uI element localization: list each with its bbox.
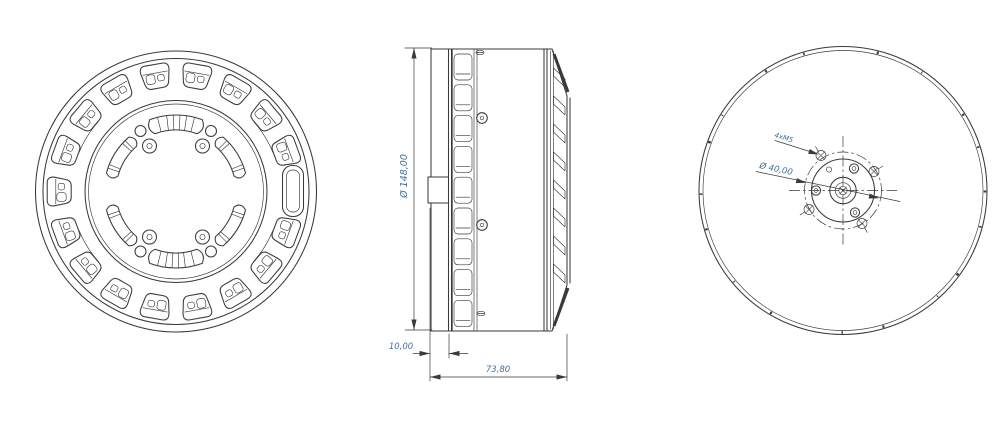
drawing-canvas: Ø 148,00 10,00 73,80 bbox=[0, 0, 1002, 423]
front-mount-screws bbox=[143, 139, 210, 244]
diameter-dimension: Ø 148,00 bbox=[399, 48, 432, 330]
rear-view: 4xM5 Ø 40,00 bbox=[699, 47, 987, 335]
side-rear-slats bbox=[554, 54, 569, 326]
thread-callout-label: 4xM5 bbox=[773, 131, 794, 144]
side-front-vents bbox=[454, 54, 472, 326]
overall-length-label: 73,80 bbox=[486, 365, 510, 375]
thread-callout: 4xM5 bbox=[773, 131, 819, 157]
wire-exit-slot bbox=[283, 166, 304, 217]
bolt-circle-dimension: Ø 40,00 bbox=[756, 160, 900, 202]
front-face-diameter-label: Ø 148,00 bbox=[399, 154, 410, 199]
side-view: Ø 148,00 10,00 73,80 bbox=[389, 48, 570, 381]
side-fasteners bbox=[476, 50, 487, 315]
overall-length-dimension: 73,80 bbox=[430, 334, 567, 381]
shaft-protrusion-dimension: 10,00 bbox=[389, 208, 468, 381]
technical-drawing: Ø 148,00 10,00 73,80 bbox=[0, 0, 1002, 423]
front-view bbox=[36, 51, 317, 332]
shaft-protrusion-label: 10,00 bbox=[389, 342, 413, 352]
